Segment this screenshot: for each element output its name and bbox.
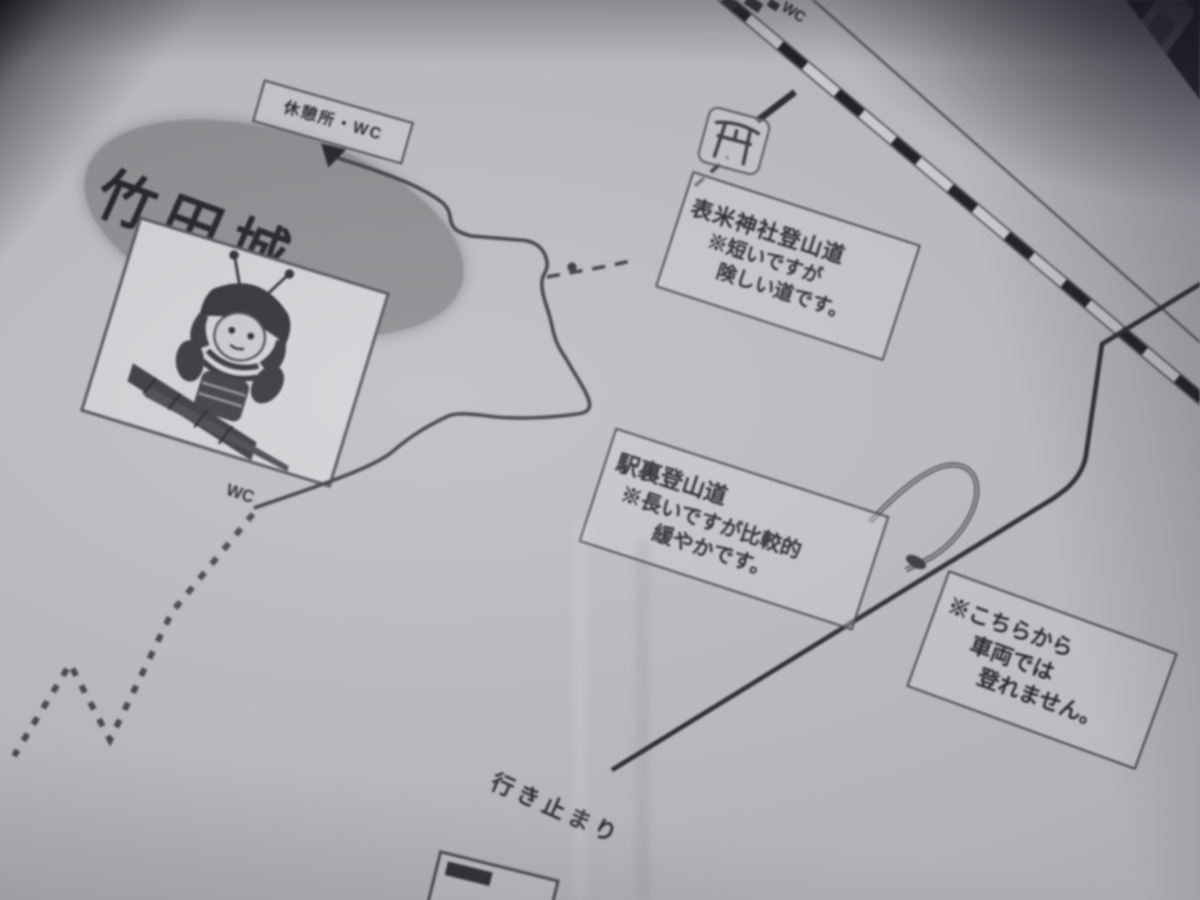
torii-gate-glyph [698,107,770,175]
trail-head-mark [757,92,795,121]
wc-trail-stippled [14,514,253,756]
map-lines [0,0,1200,900]
cutoff-text-fragment [445,861,493,886]
paper-fold-streak [575,520,585,900]
main-trail-line [254,158,590,508]
printed-trail-map-photo: 竹田城 [0,0,1200,900]
paper-fold-streak [638,540,647,900]
map-artwork: 竹田城 [0,0,1200,900]
shrine-trail-dashed [547,261,630,277]
